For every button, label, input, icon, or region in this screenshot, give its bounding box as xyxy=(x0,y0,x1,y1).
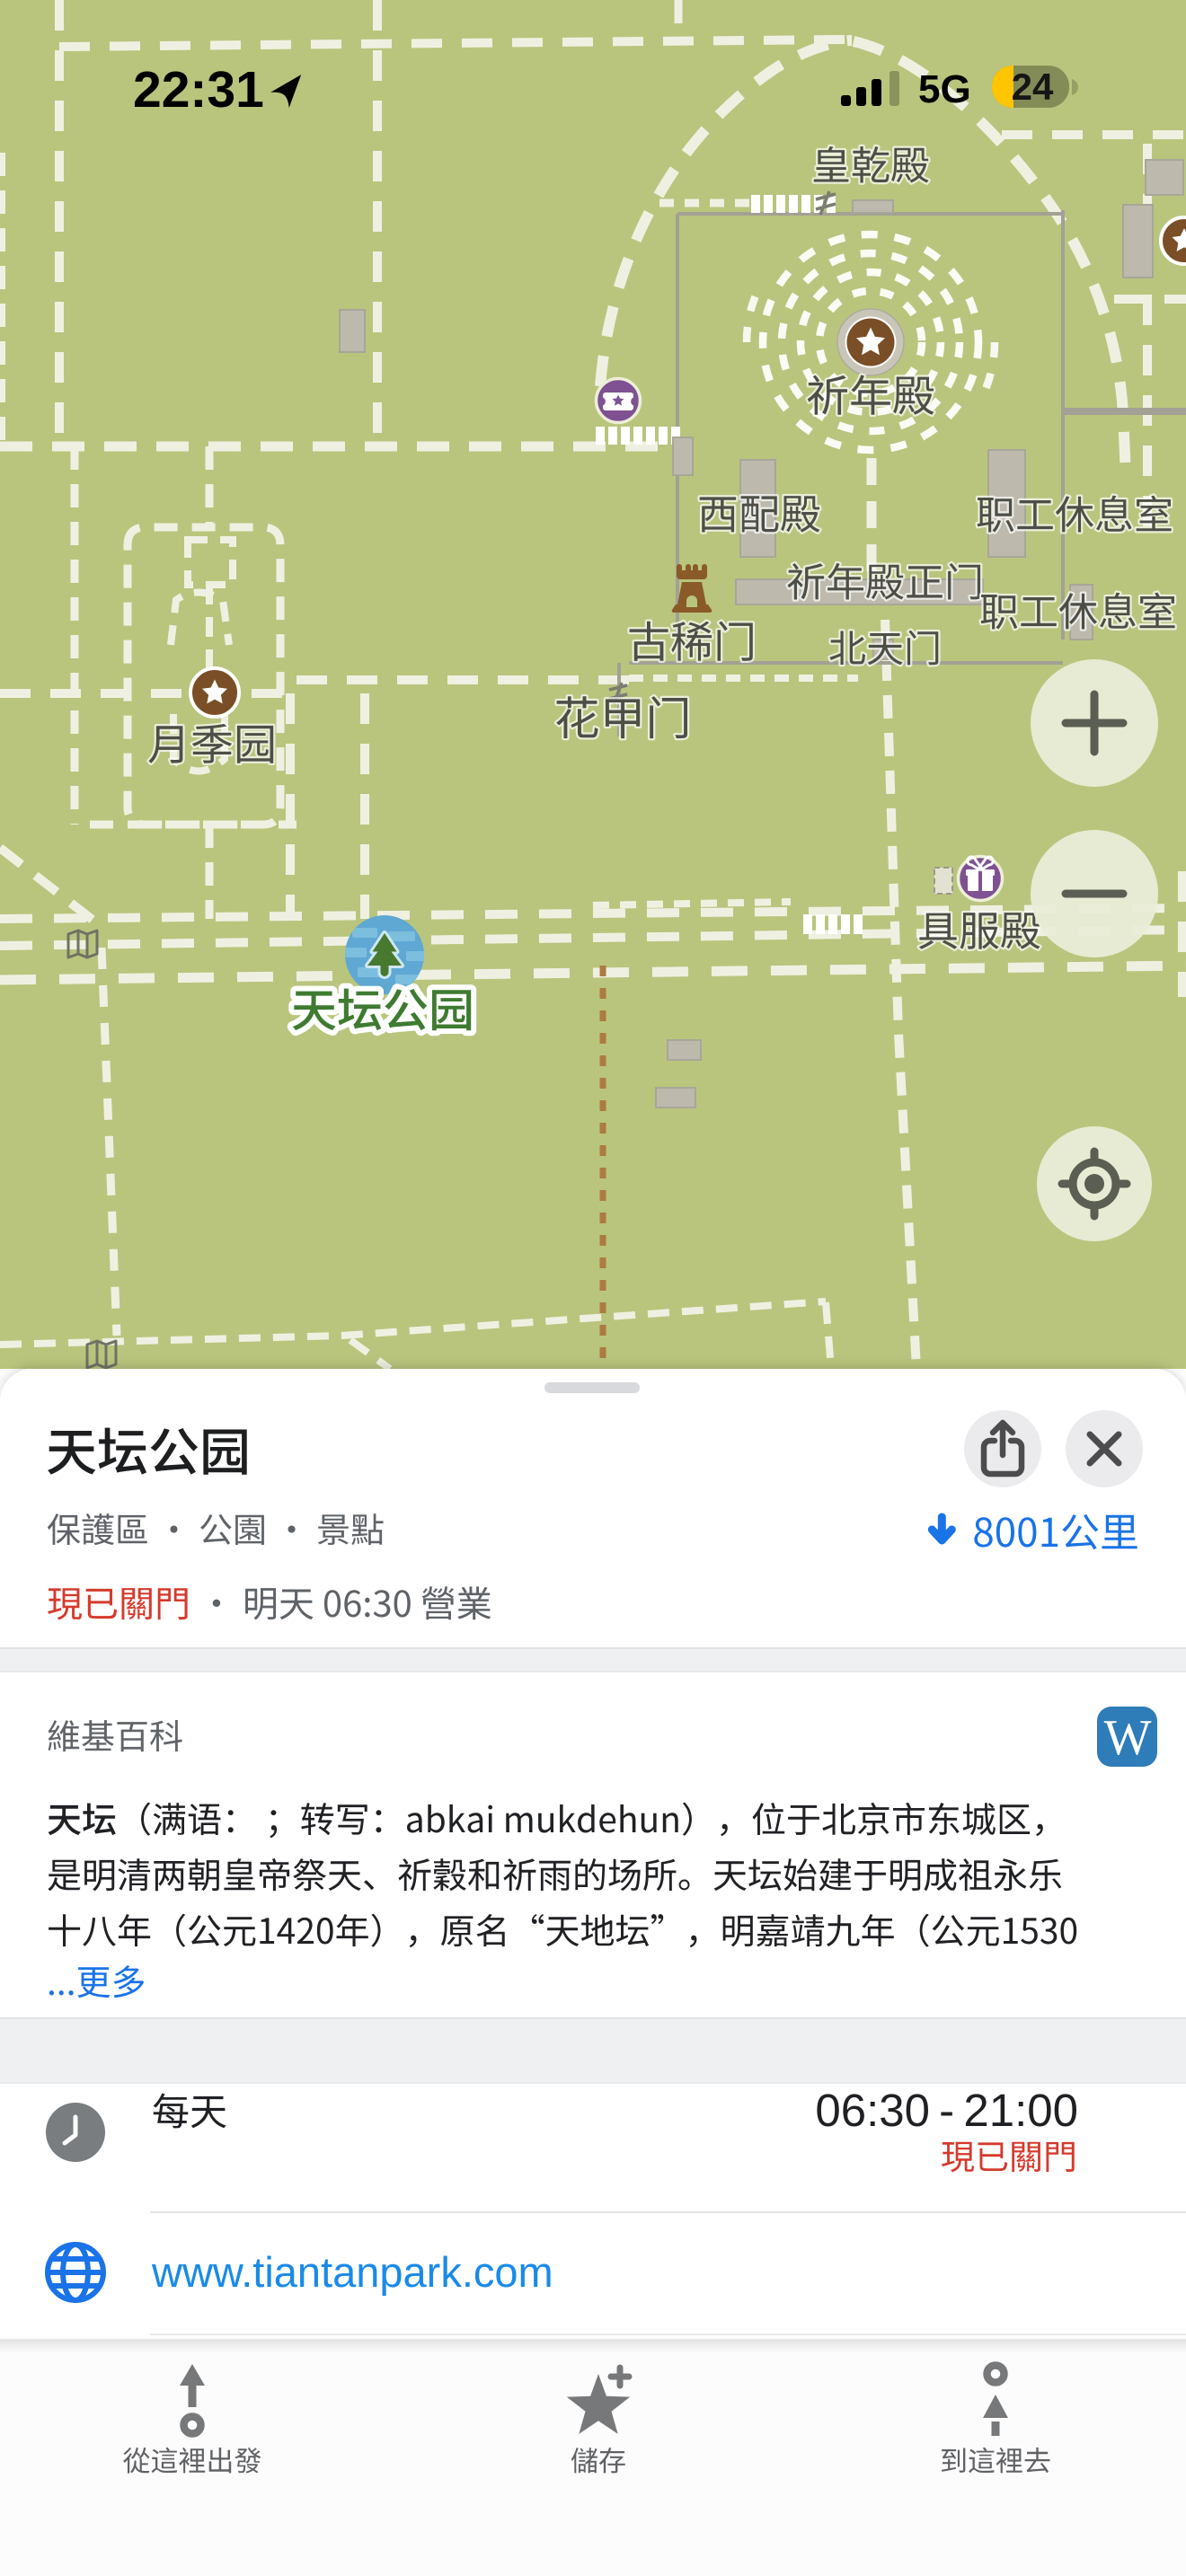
svg-text:22:31: 22:31 xyxy=(133,61,264,119)
svg-text:5G: 5G xyxy=(918,67,971,111)
svg-text:www.tiantanpark.com: www.tiantanpark.com xyxy=(151,2248,553,2296)
svg-text:W: W xyxy=(1104,1710,1152,1766)
svg-text:24: 24 xyxy=(1012,66,1054,108)
svg-text:06:30 - 21:00: 06:30 - 21:00 xyxy=(815,2085,1078,2136)
